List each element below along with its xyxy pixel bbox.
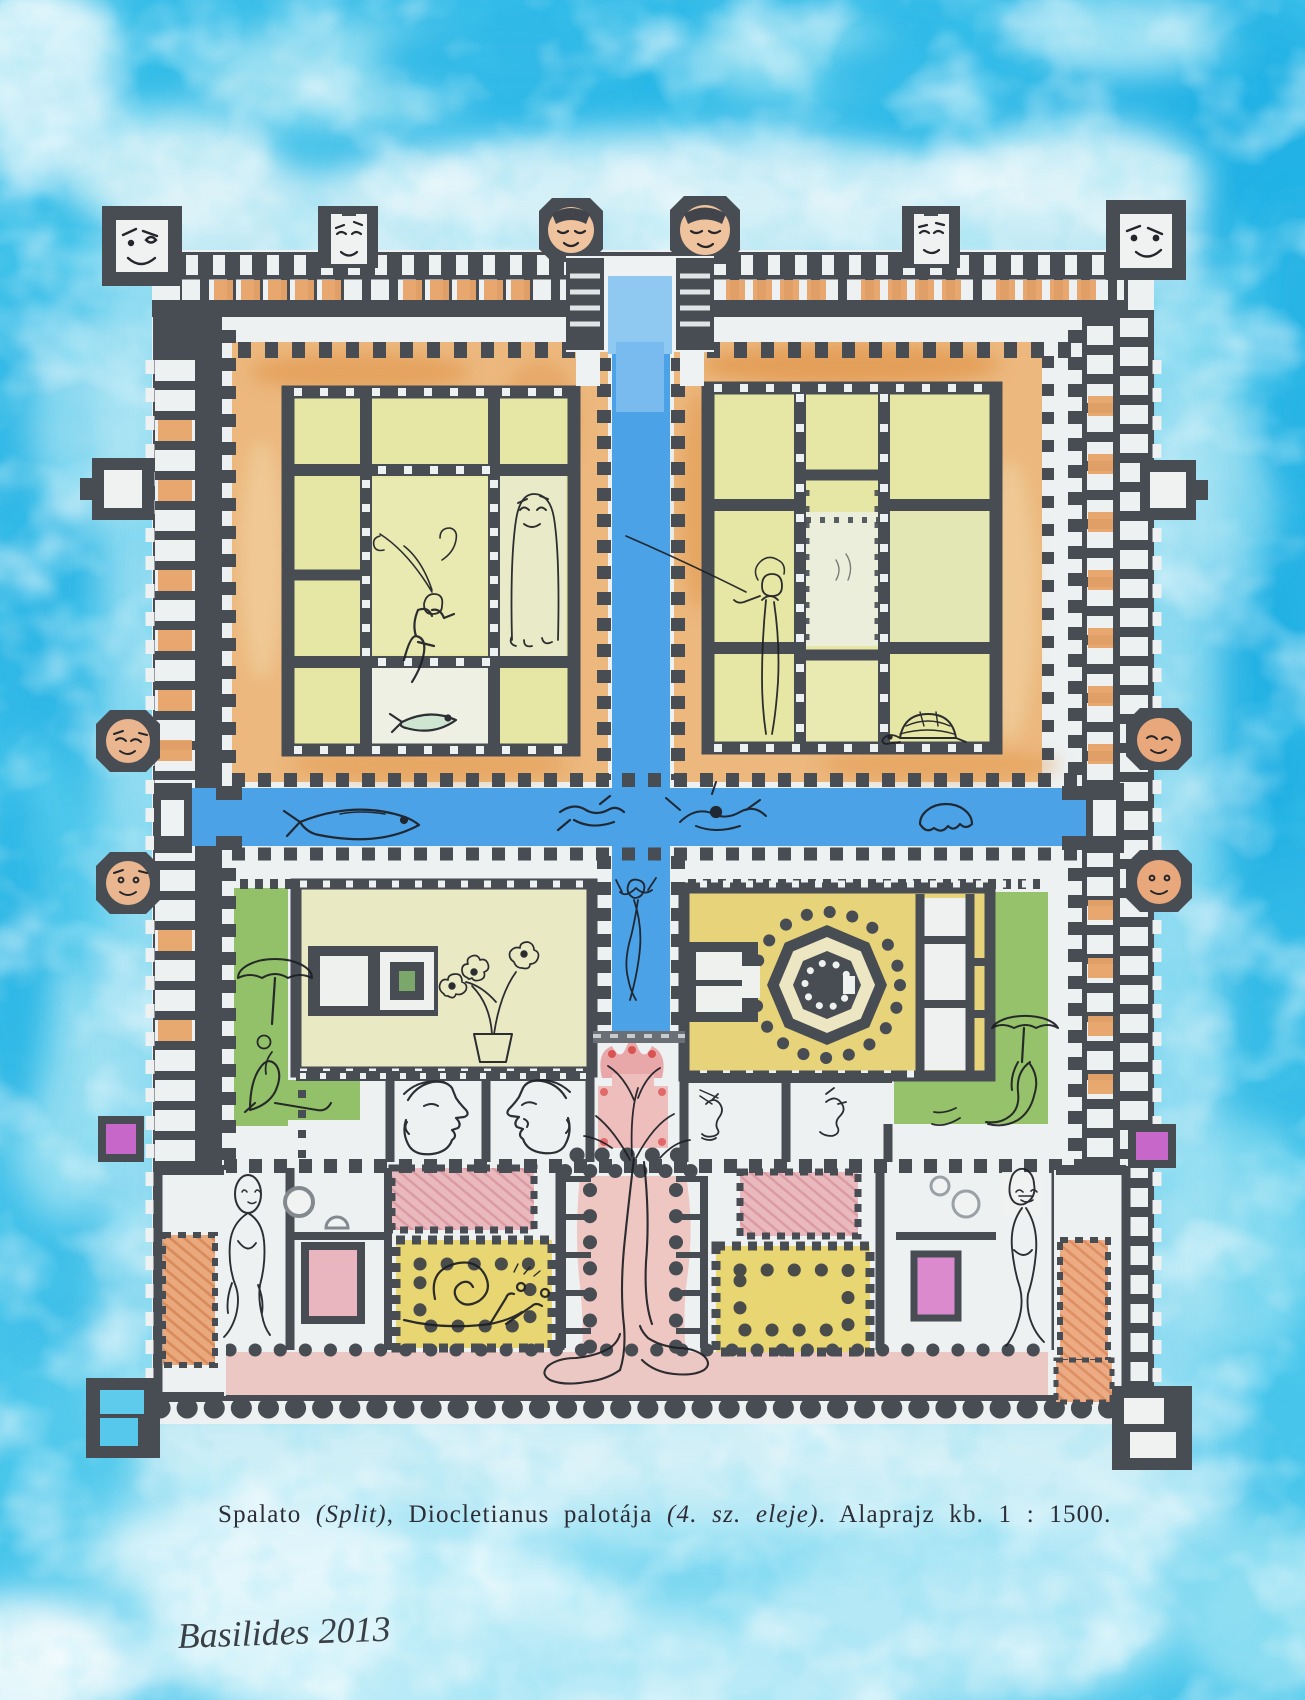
svg-text:Spalato (Split), Diocletianus: Spalato (Split), Diocletianus palotája (… bbox=[218, 1501, 1112, 1528]
svg-text:Basilides 2013: Basilides 2013 bbox=[177, 1609, 391, 1656]
